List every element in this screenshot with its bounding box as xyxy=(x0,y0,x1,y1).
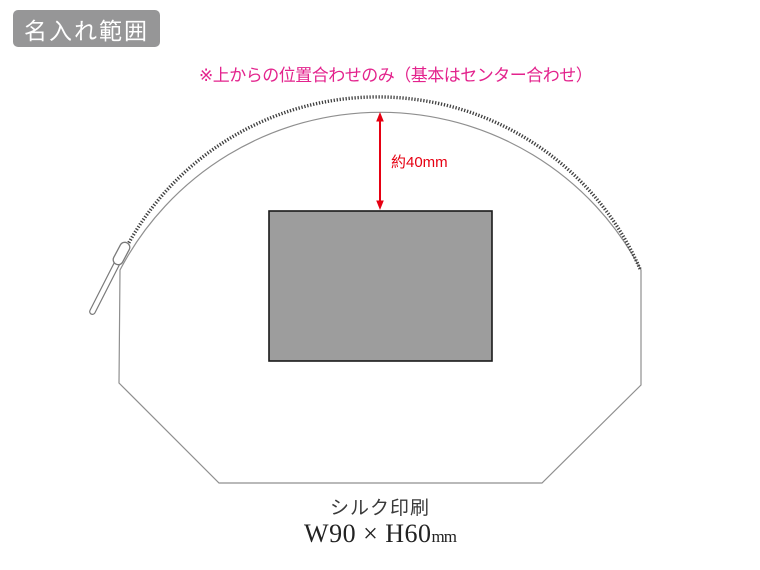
pouch-diagram xyxy=(0,0,760,570)
print-size-label: W90 × H60mm xyxy=(0,520,760,549)
print-area-rect xyxy=(269,211,492,361)
dimension-arrowhead-top xyxy=(376,112,384,122)
print-size-value: W90 × H60 xyxy=(304,519,431,548)
print-method-label: シルク印刷 xyxy=(0,498,760,520)
print-caption: シルク印刷 W90 × H60mm xyxy=(0,498,760,548)
print-size-unit: mm xyxy=(432,527,456,546)
zipper-pull-tab-icon xyxy=(89,257,123,316)
imprint-area-spec-page: 名入れ範囲 ※上からの位置合わせのみ（基本はセンター合わせ） 約40mm シルク… xyxy=(0,0,760,570)
zipper-slider-icon xyxy=(111,241,131,267)
dimension-arrowhead-bottom xyxy=(376,201,384,211)
dimension-label: 約40mm xyxy=(391,151,448,172)
